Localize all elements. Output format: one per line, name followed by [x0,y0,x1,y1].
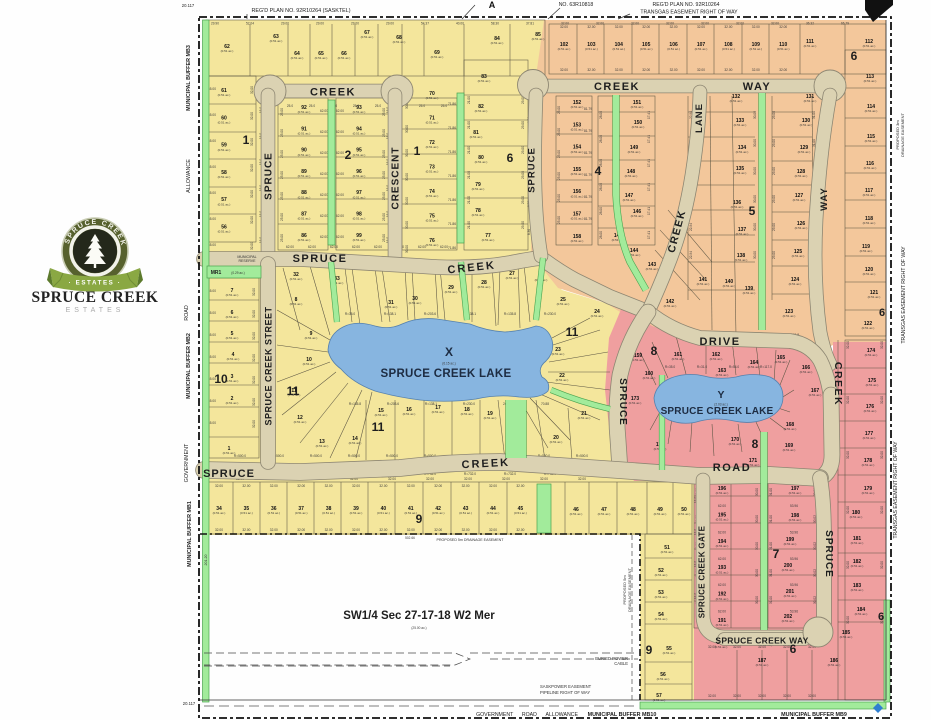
svg-text:32.00: 32.00 [252,398,256,406]
svg-text:(0.51 ac.): (0.51 ac.) [472,213,485,217]
svg-text:62.00: 62.00 [320,172,328,176]
svg-text:32.00: 32.00 [880,341,884,349]
svg-text:32.00: 32.00 [407,484,415,488]
svg-text:32.00: 32.00 [250,190,254,198]
svg-text:31.00: 31.00 [769,515,773,523]
svg-text:28.00: 28.00 [599,207,603,215]
svg-text:25.00: 25.00 [280,213,284,221]
svg-text:29.00: 29.00 [521,146,525,154]
svg-text:(0.51 ac.): (0.51 ac.) [851,541,864,545]
svg-text:32.00: 32.00 [252,376,256,384]
svg-text:40.00: 40.00 [456,22,464,26]
svg-text:(0.51 ac.): (0.51 ac.) [558,47,571,51]
svg-text:17.41: 17.41 [647,207,651,215]
svg-text:32.00: 32.00 [379,484,387,488]
svg-text:25.00: 25.00 [382,150,386,158]
svg-text:(0.51 ac.): (0.51 ac.) [432,410,445,414]
svg-text:(0.51 ac.): (0.51 ac.) [862,491,875,495]
svg-text:21.00: 21.00 [467,146,471,154]
svg-text:11: 11 [372,420,385,434]
svg-text:32.00: 32.00 [846,561,850,569]
svg-text:(0.51 ac.): (0.51 ac.) [862,326,875,330]
svg-text:(0.51 ac.): (0.51 ac.) [792,254,805,258]
svg-text:(0.51 ac.): (0.51 ac.) [783,448,796,452]
svg-text:NO. 63R10818: NO. 63R10818 [559,2,594,8]
svg-text:(0.51 ac.): (0.51 ac.) [798,150,811,154]
svg-text:R=500.0: R=500.0 [576,454,588,458]
svg-text:32.00: 32.00 [779,25,787,29]
svg-text:62.00: 62.00 [374,245,382,249]
svg-text:(0.51 ac.): (0.51 ac.) [631,214,644,218]
svg-text:32.00: 32.00 [297,528,305,532]
svg-text:32.00: 32.00 [670,68,678,72]
svg-text:(0.51 ac.): (0.51 ac.) [789,282,802,286]
svg-text:31.00: 31.00 [812,111,816,119]
svg-text:30.00: 30.00 [405,197,409,205]
svg-text:32.00: 32.00 [489,484,497,488]
svg-text:25.00: 25.00 [280,192,284,200]
svg-text:(0.51 ac.): (0.51 ac.) [218,230,231,234]
svg-text:(0.51 ac.): (0.51 ac.) [298,132,311,136]
svg-text:(0.51 ac.): (0.51 ac.) [377,511,390,515]
svg-text:32.00: 32.00 [724,25,732,29]
svg-text:32.00: 32.00 [697,68,705,72]
svg-text:25.00: 25.00 [382,129,386,137]
svg-text:(0.51 ac.): (0.51 ac.) [556,378,569,382]
svg-text:(0.51 ac.): (0.51 ac.) [316,444,329,448]
svg-text:32.00: 32.00 [846,451,850,459]
svg-text:32.00: 32.00 [215,484,223,488]
svg-text:(0.51 ac.): (0.51 ac.) [571,194,584,198]
svg-text:30.00: 30.00 [405,245,409,253]
svg-text:(0.51 ac.): (0.51 ac.) [631,105,644,109]
svg-text:32.00: 32.00 [596,22,604,26]
svg-text:SPRUCE: SPRUCE [264,152,275,200]
svg-text:(0.51 ac.): (0.51 ac.) [514,511,527,515]
svg-text:62.00: 62.00 [718,557,726,561]
svg-text:28.00: 28.00 [599,111,603,119]
svg-text:30.00: 30.00 [753,139,757,147]
svg-text:(0.51 ac.): (0.51 ac.) [756,663,769,667]
svg-text:71.86: 71.86 [448,126,456,130]
svg-text:(0.51 ac.): (0.51 ac.) [426,145,439,149]
svg-text:29.00: 29.00 [772,111,776,119]
svg-text:ALLOWANCE: ALLOWANCE [186,159,192,193]
svg-text:11: 11 [566,325,579,339]
svg-text:62.00: 62.00 [320,151,328,155]
svg-text:30.00: 30.00 [405,221,409,229]
svg-text:36.32: 36.32 [806,22,814,26]
svg-text:1: 1 [243,133,250,147]
svg-text:32.00: 32.00 [502,477,510,481]
svg-text:29.00: 29.00 [521,171,525,179]
svg-text:28.00: 28.00 [599,135,603,143]
svg-text:(0.51 ac.): (0.51 ac.) [784,594,797,598]
svg-text:R=35.0: R=35.0 [345,312,356,316]
svg-text:(0.51 ac.): (0.51 ac.) [470,135,483,139]
svg-text:(0.51 ac.): (0.51 ac.) [749,47,762,51]
svg-text:REG'D PLAN NO. 92R10264 (S: REG'D PLAN NO. 92R10264 (SASKTEL) [252,8,351,14]
svg-text:32.00: 32.00 [670,25,678,29]
svg-text:(0.51 ac.): (0.51 ac.) [571,150,584,154]
svg-text:MUNICIPAL BUFFER MB1: MUNICIPAL BUFFER MB1 [187,501,193,567]
svg-text:32.00: 32.00 [733,694,741,698]
svg-text:(0.51 ac.): (0.51 ac.) [710,357,723,361]
svg-text:62.00: 62.00 [336,172,344,176]
svg-text:21.00: 21.00 [467,121,471,129]
svg-text:8: 8 [651,344,658,358]
svg-text:31.00: 31.00 [769,569,773,577]
svg-text:MR1: MR1 [211,270,222,276]
svg-text:(0.51 ac.): (0.51 ac.) [851,588,864,592]
svg-text:R=500.0: R=500.0 [348,454,360,458]
svg-text:32.00: 32.00 [252,310,256,318]
svg-text:(0.51 ac.): (0.51 ac.) [730,99,743,103]
svg-text:32.00: 32.00 [270,484,278,488]
svg-text:30.00: 30.00 [755,515,759,523]
svg-text:(0.51 ac.): (0.51 ac.) [828,663,841,667]
svg-text:32.00: 32.00 [250,138,254,146]
svg-text:201.20: 201.20 [204,555,208,566]
svg-text:CREEK: CREEK [310,87,356,99]
svg-text:10: 10 [214,372,228,386]
svg-text:(0.51 ac.): (0.51 ac.) [298,153,311,157]
svg-text:32.00: 32.00 [587,68,595,72]
svg-text:29.00: 29.00 [521,121,525,129]
svg-text:(0.51 ac.): (0.51 ac.) [809,393,822,397]
svg-text:32.00: 32.00 [489,528,497,532]
svg-text:(0.51 ac.): (0.51 ac.) [571,105,584,109]
svg-text:25.0: 25.0 [375,104,381,108]
svg-text:SPRUCE CREEK GATE: SPRUCE CREEK GATE [698,525,707,618]
svg-text:25.0: 25.0 [441,104,447,108]
svg-text:R=732.0: R=732.0 [464,472,476,476]
svg-text:32.00: 32.00 [215,528,223,532]
svg-text:(0.51 ac.): (0.51 ac.) [353,132,366,136]
svg-text:32.00: 32.00 [270,528,278,532]
svg-text:53.96: 53.96 [790,610,798,614]
svg-text:(0.51 ac.): (0.51 ac.) [240,511,253,515]
svg-text:81.79: 81.79 [584,217,592,221]
svg-text:25.00: 25.00 [382,171,386,179]
svg-text:(0.51 ac.): (0.51 ac.) [863,272,876,276]
svg-text:32.00: 32.00 [615,68,623,72]
svg-text:SPRUCE CREEK LAKE: SPRUCE CREEK LAKE [661,406,774,417]
svg-text:(0.51 ac.): (0.51 ac.) [864,409,877,413]
svg-text:(0.51 ac.): (0.51 ac.) [663,651,676,655]
svg-text:32.00: 32.00 [724,68,732,72]
svg-text:MUNICIPAL BUFFER MB3: MUNICIPAL BUFFER MB3 [186,45,192,111]
svg-text:30.00: 30.00 [753,111,757,119]
svg-text:(0.51 ac.): (0.51 ac.) [632,358,645,362]
svg-text:(0.51 ac.): (0.51 ac.) [863,436,876,440]
svg-text:(0.51 ac.): (0.51 ac.) [661,550,674,554]
svg-text:53.96: 53.96 [790,583,798,587]
svg-text:32.00: 32.00 [462,484,470,488]
svg-text:(0.51 ac.): (0.51 ac.) [868,295,881,299]
svg-text:(0.51 ac.): (0.51 ac.) [716,373,729,377]
svg-text:6: 6 [879,307,885,319]
svg-text:32.00: 32.00 [752,25,760,29]
svg-text:(0.51 ac.): (0.51 ac.) [612,47,625,51]
svg-text:SPRUCE: SPRUCE [293,253,348,265]
svg-text:(0.51 ac.): (0.51 ac.) [654,512,667,516]
svg-text:R=500.0: R=500.0 [386,454,398,458]
svg-text:(0.51 ac.): (0.51 ac.) [672,357,685,361]
svg-text:R=138.1: R=138.1 [425,402,437,406]
svg-text:32.00: 32.00 [808,694,816,698]
svg-text:32.00: 32.00 [407,528,415,532]
svg-text:(0.51 ac.): (0.51 ac.) [270,39,283,43]
svg-text:(0.51 ac.): (0.51 ac.) [860,249,873,253]
svg-text:R=138.1: R=138.1 [384,312,396,316]
svg-text:81.79: 81.79 [584,195,592,199]
svg-text:(0.51 ac.): (0.51 ac.) [226,293,239,297]
svg-text:(0.51 ac.): (0.51 ac.) [716,544,729,548]
svg-text:32.00: 32.00 [434,484,442,488]
svg-text:(25.00 ac.): (25.00 ac.) [411,626,426,630]
svg-text:(0.51 ac.): (0.51 ac.) [226,401,239,405]
svg-text:(0.51 ac.): (0.51 ac.) [578,416,591,420]
svg-text:25.0: 25.0 [419,104,425,108]
svg-text:(0.51 ac.): (0.51 ac.) [716,597,729,601]
svg-text:62.00: 62.00 [336,193,344,197]
svg-text:32.00: 32.00 [708,694,716,698]
svg-text:28.00: 28.00 [599,183,603,191]
svg-text:(0.51 ac.): (0.51 ac.) [655,573,668,577]
svg-text:(0.51 ac.): (0.51 ac.) [298,174,311,178]
svg-text:(0.51 ac.): (0.51 ac.) [478,79,491,83]
svg-text:CABLE: CABLE [614,661,628,666]
svg-text:53.96: 53.96 [790,557,798,561]
svg-text:(0.51 ac.): (0.51 ac.) [782,619,795,623]
svg-text:62.00: 62.00 [320,130,328,134]
svg-text:ROAD: ROAD [184,305,190,321]
svg-text:25.00: 25.00 [280,171,284,179]
svg-text:22.94: 22.94 [689,223,693,231]
svg-text:25.00: 25.00 [280,150,284,158]
svg-text:(0.51 ac.): (0.51 ac.) [862,463,875,467]
svg-text:(0.51 ac.): (0.51 ac.) [290,302,303,306]
svg-text:(0.51 ac.): (0.51 ac.) [716,570,729,574]
svg-text:25.00: 25.00 [382,213,386,221]
svg-text:(0.29 ac.): (0.29 ac.) [231,271,244,275]
svg-text:30.00: 30.00 [755,596,759,604]
svg-text:22.94: 22.94 [689,251,693,259]
svg-text:(0.51 ac.): (0.51 ac.) [585,47,598,51]
svg-text:32.00: 32.00 [250,112,254,120]
svg-text:(0.51 ac.): (0.51 ac.) [793,198,806,202]
svg-text:(0.51 ac.): (0.51 ac.) [426,219,439,223]
svg-text:71.86: 71.86 [448,150,456,154]
svg-text:62.00: 62.00 [440,245,448,249]
svg-text:(0.51 ac.): (0.51 ac.) [426,243,439,247]
svg-text:(0.51 ac.): (0.51 ac.) [632,125,645,129]
svg-text:TRANSGAS EASEMENT RIGHT OF: TRANSGAS EASEMENT RIGHT OF WAY [893,441,899,539]
svg-text:R=203.6: R=203.6 [424,312,436,316]
svg-text:(0.51 ac.): (0.51 ac.) [722,47,735,51]
svg-text:(0.51 ac.): (0.51 ac.) [800,370,813,374]
svg-text:(0.51 ac.): (0.51 ac.) [227,357,240,361]
svg-text:SPRUCE CREEK LAKE: SPRUCE CREEK LAKE [381,368,512,380]
svg-text:32.00: 32.00 [250,242,254,250]
svg-text:21.00: 21.00 [467,171,471,179]
svg-text:32.00: 32.00 [560,68,568,72]
svg-text:29.00: 29.00 [316,22,324,26]
svg-text:(0.51 ac.): (0.51 ac.) [743,291,756,295]
svg-text:32.00: 32.00 [752,68,760,72]
svg-text:(0.51 ac.): (0.51 ac.) [353,153,366,157]
svg-text:32.00: 32.00 [736,22,744,26]
svg-text:32.00: 32.00 [846,341,850,349]
svg-text:4: 4 [595,164,602,178]
svg-text:30.00: 30.00 [753,251,757,259]
svg-text:25.00: 25.00 [557,106,561,114]
svg-text:53.96: 53.96 [790,504,798,508]
svg-text:32.00: 32.00 [388,477,396,481]
svg-text:29.00: 29.00 [772,251,776,259]
svg-text:(0.51 ac.): (0.51 ac.) [591,314,604,318]
svg-text:32.00: 32.00 [846,396,850,404]
svg-text:62.00: 62.00 [718,610,726,614]
svg-text:(0.51 ac.): (0.51 ac.) [777,47,790,51]
svg-text:30.00: 30.00 [755,542,759,550]
svg-text:29.00: 29.00 [772,223,776,231]
svg-text:(0.51 ac.): (0.51 ac.) [667,47,680,51]
svg-text:(0.51 ac.): (0.51 ac.) [298,238,311,242]
svg-text:32.00: 32.00 [587,25,595,29]
svg-text:(0.51 ac.): (0.51 ac.) [445,290,458,294]
svg-text:32.00: 32.00 [880,451,884,459]
svg-text:Y: Y [717,389,724,401]
svg-text:(0.51 ac.): (0.51 ac.) [349,441,362,445]
svg-text:(0.51 ac.): (0.51 ac.) [353,217,366,221]
svg-text:25.00: 25.00 [280,234,284,242]
svg-text:62.00: 62.00 [336,151,344,155]
svg-text:32.00: 32.00 [560,25,568,29]
svg-text:(0.51 ac.): (0.51 ac.) [657,677,670,681]
svg-text:(0.51 ac.): (0.51 ac.) [865,109,878,113]
svg-text:71.86: 71.86 [448,222,456,226]
svg-text:25.00: 25.00 [557,172,561,180]
svg-text:6: 6 [878,611,884,623]
svg-text:(0.51 ac.): (0.51 ac.) [552,352,565,356]
svg-text:(0.51 ac.): (0.51 ac.) [461,412,474,416]
svg-text:9: 9 [416,512,423,526]
svg-text:(0.51 ac.): (0.51 ac.) [863,44,876,48]
svg-text:25.00: 25.00 [382,192,386,200]
svg-text:ROAD: ROAD [713,462,751,474]
svg-text:32.00: 32.00 [758,694,766,698]
svg-text:(0.51 ac.): (0.51 ac.) [628,150,641,154]
svg-text:(0.51 ac.): (0.51 ac.) [865,353,878,357]
svg-text:(0.51 ac.): (0.51 ac.) [735,258,748,262]
svg-text:30.00: 30.00 [405,149,409,157]
svg-text:6: 6 [790,642,797,656]
svg-text:R=54.0: R=54.0 [729,365,740,369]
svg-text:(0.51 ac.): (0.51 ac.) [338,56,351,60]
svg-text:A: A [489,0,496,10]
svg-text:(0.51 ac.): (0.51 ac.) [375,413,388,417]
svg-text:21.00: 21.00 [467,196,471,204]
svg-text:CREEK: CREEK [594,81,640,93]
svg-text:1: 1 [414,144,421,158]
svg-text:(0.51 ac.): (0.51 ac.) [627,512,640,516]
svg-text:(0.51 ac.): (0.51 ac.) [625,174,638,178]
svg-text:(0.51 ac.): (0.51 ac.) [570,512,583,516]
svg-text:25.00: 25.00 [557,150,561,158]
svg-text:32.00: 32.00 [464,477,472,481]
svg-text:(6.15 ac.): (6.15 ac.) [442,362,455,366]
svg-text:32.00: 32.00 [250,164,254,172]
svg-text:(0.51 ac.): (0.51 ac.) [716,623,729,627]
svg-text:(0.51 ac.): (0.51 ac.) [478,285,491,289]
svg-text:ESTATES: ESTATES [66,307,125,314]
svg-text:21.00: 21.00 [467,221,471,229]
svg-text:R=230.0: R=230.0 [544,312,556,316]
svg-text:(0.51 ac.): (0.51 ac.) [459,511,472,515]
svg-text:66.79: 66.79 [841,22,849,26]
svg-text:30.00: 30.00 [755,569,759,577]
svg-text:(0.51 ac.): (0.51 ac.) [789,491,802,495]
svg-text:(0.51 ac.): (0.51 ac.) [290,277,303,281]
svg-text:(0.51 ac.): (0.51 ac.) [716,518,729,522]
svg-text:(0.51 ac.): (0.51 ac.) [863,193,876,197]
svg-text:(0.51 ac.): (0.51 ac.) [864,79,877,83]
svg-text:62.00: 62.00 [336,235,344,239]
svg-text:29.00: 29.00 [281,22,289,26]
svg-text:(0.51 ac.): (0.51 ac.) [426,194,439,198]
svg-text:(0.51 ac.): (0.51 ac.) [353,174,366,178]
svg-text:(0.51 ac.): (0.51 ac.) [748,365,761,369]
svg-text:(0.51 ac.): (0.51 ac.) [678,512,691,516]
svg-text:SPRUCE: SPRUCE [823,530,834,578]
svg-text:(0.51 ac.): (0.51 ac.) [532,37,545,41]
svg-text:(0.51 ac.): (0.51 ac.) [736,150,749,154]
svg-text:62.00: 62.00 [320,235,328,239]
svg-text:20.117: 20.117 [182,3,195,8]
svg-text:(0.51 ac.): (0.51 ac.) [218,121,231,125]
svg-text:62.00: 62.00 [336,214,344,218]
svg-text:WAY: WAY [819,187,830,211]
svg-text:32.00: 32.00 [462,528,470,532]
svg-text:RESERVE: RESERVE [238,259,256,263]
svg-text:(0.51 ac.): (0.51 ac.) [716,491,729,495]
svg-text:(0.51 ac.): (0.51 ac.) [475,109,488,113]
svg-text:32.00: 32.00 [242,484,250,488]
svg-text:32.00: 32.00 [880,506,884,514]
svg-text:(0.51 ac.): (0.51 ac.) [863,221,876,225]
svg-text:SPRUCE CREEK: SPRUCE CREEK [31,289,158,306]
svg-text:29.00: 29.00 [772,139,776,147]
svg-text:32.00: 32.00 [325,528,333,532]
svg-text:(0.51 ac.): (0.51 ac.) [482,238,495,242]
svg-text:(0.51 ac.): (0.51 ac.) [783,314,796,318]
svg-text:17.41: 17.41 [647,111,651,119]
svg-text:PROPOSED 5m DRAINAGE EASEMENT: PROPOSED 5m DRAINAGE EASEMENT [437,538,505,542]
svg-text:32.00: 32.00 [325,484,333,488]
svg-text:32.00: 32.00 [352,528,360,532]
svg-text:R=35.0: R=35.0 [665,365,676,369]
svg-text:62.00: 62.00 [286,245,294,249]
svg-text:(0.51 ac.): (0.51 ac.) [426,96,439,100]
svg-text:(0.51 ac.): (0.51 ac.) [475,160,488,164]
svg-text:(0.51 ac.): (0.51 ac.) [298,195,311,199]
svg-text:81.79: 81.79 [584,129,592,133]
svg-text:29.00: 29.00 [772,195,776,203]
svg-text:R=732.0: R=732.0 [504,472,516,476]
svg-text:32.00: 32.00 [540,477,548,481]
